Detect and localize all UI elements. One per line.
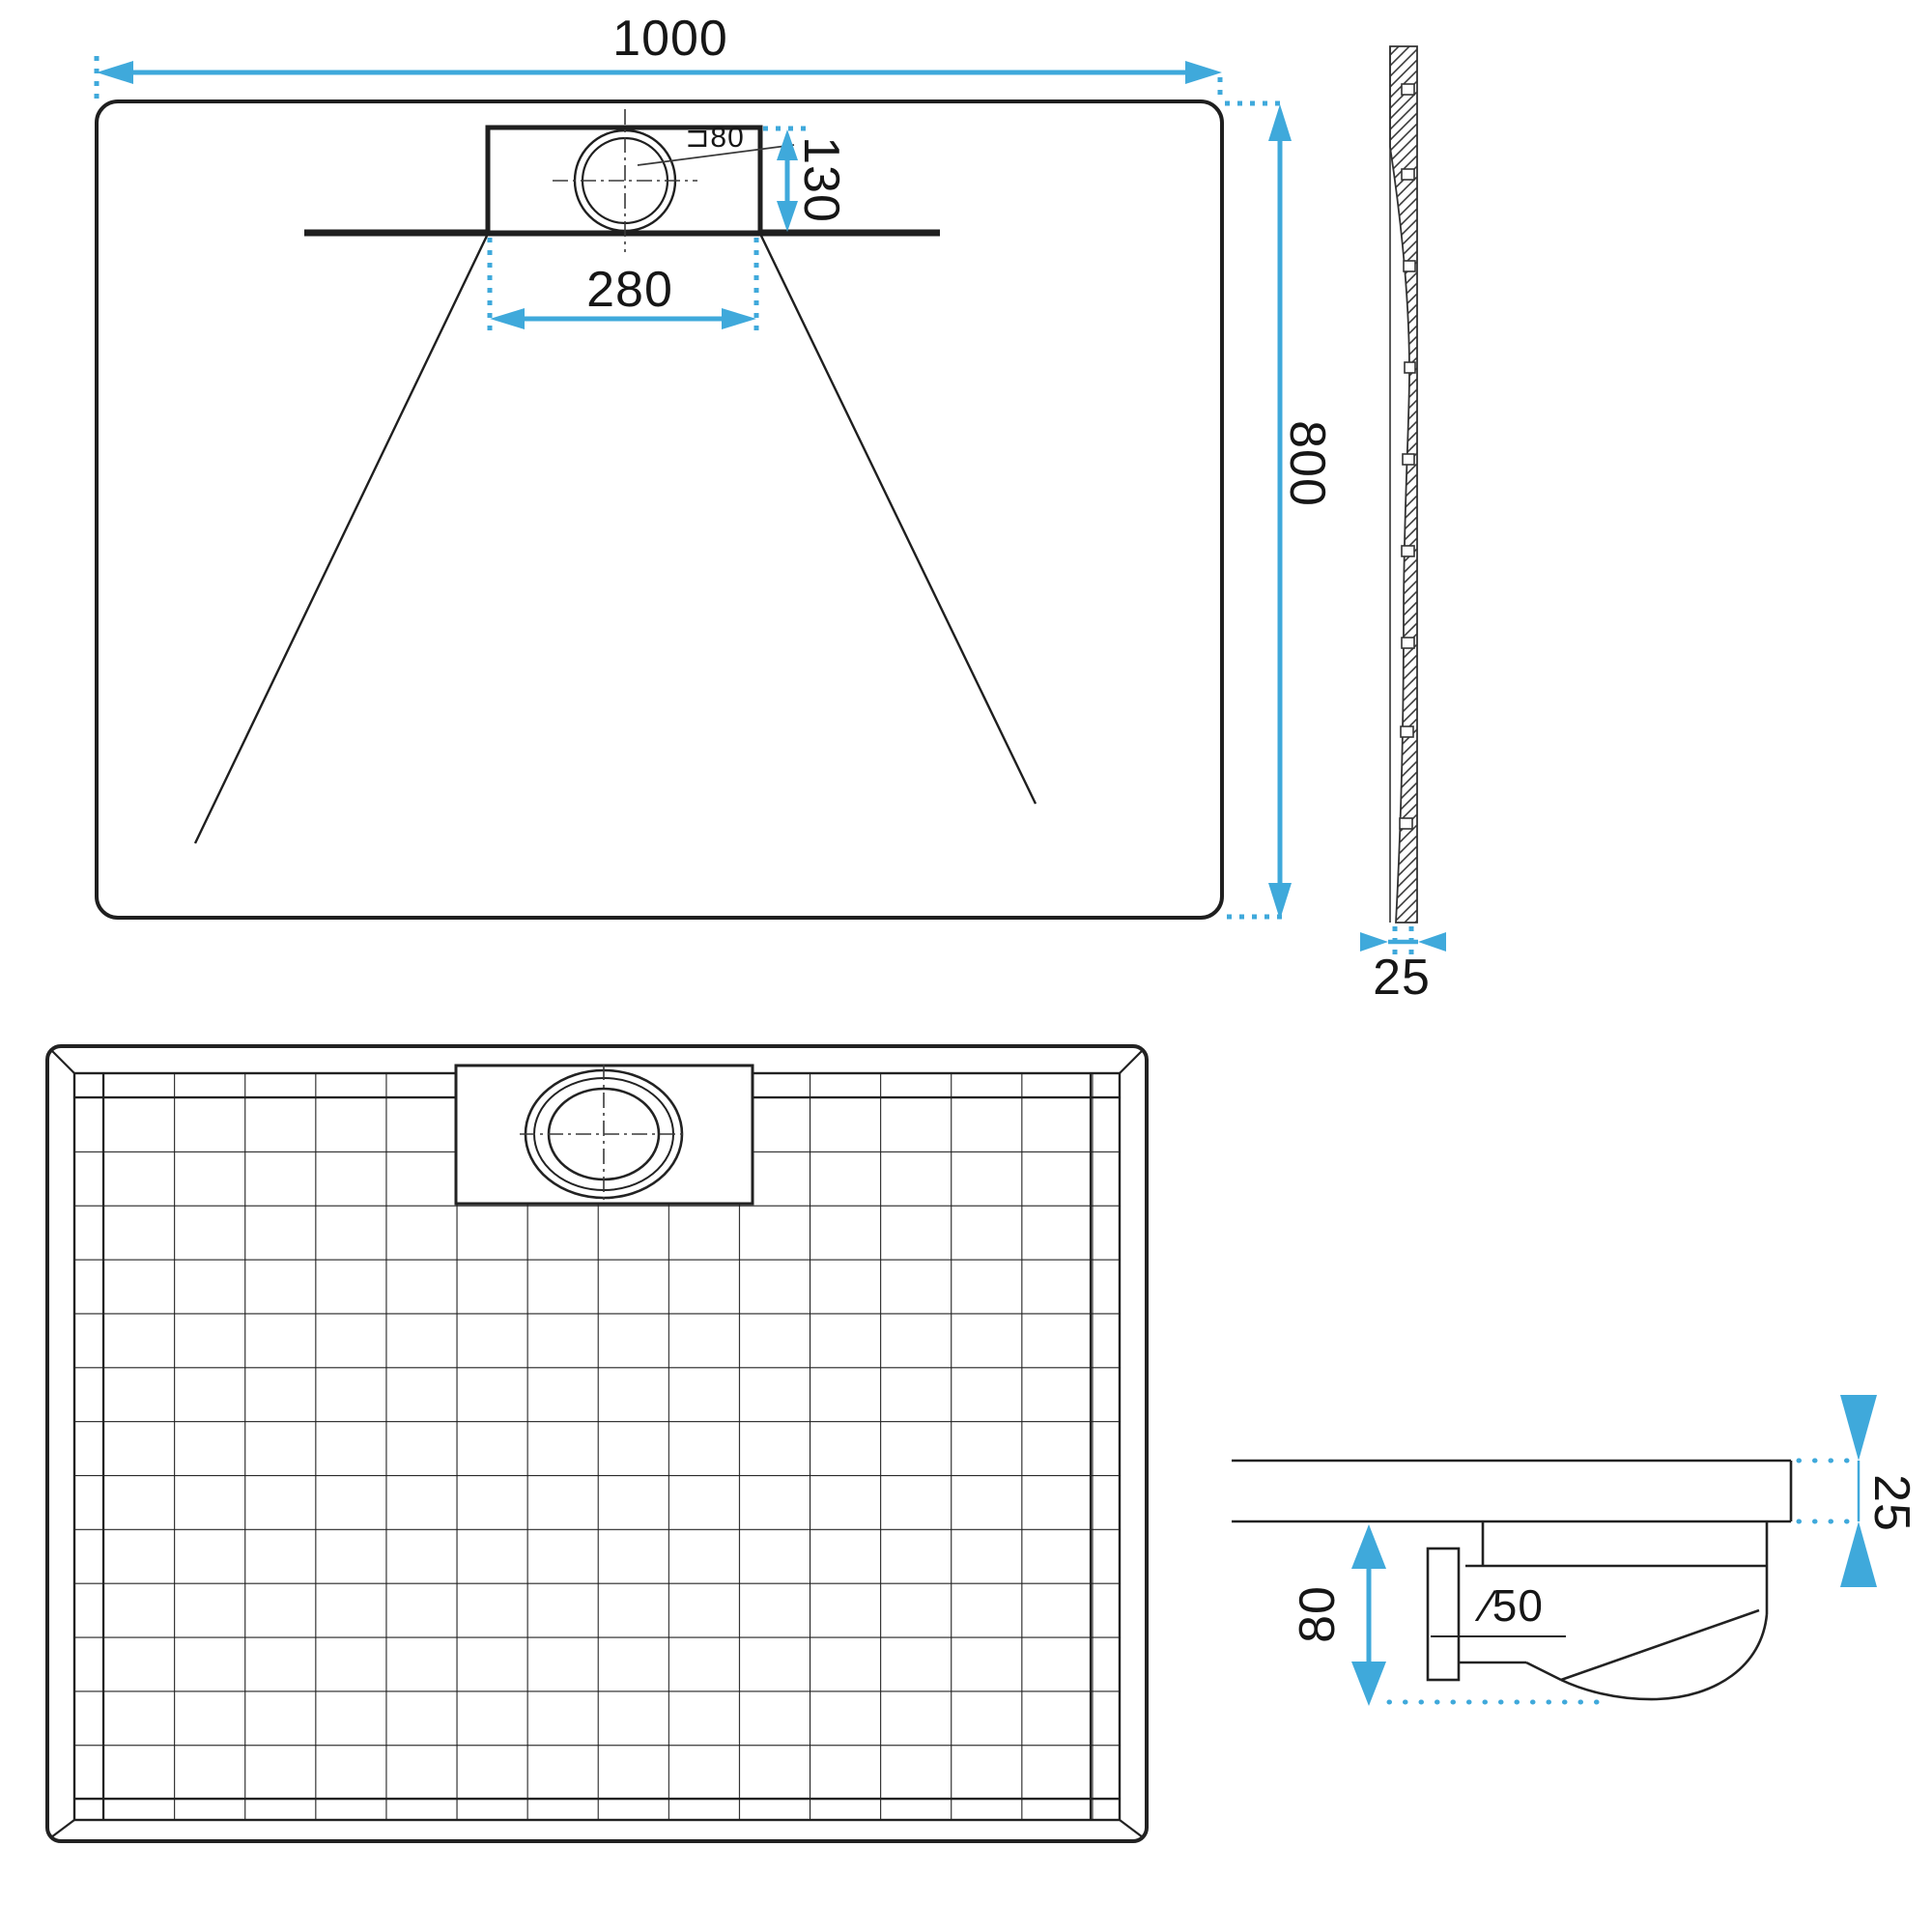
dim-label-section-thickness: 25 — [1866, 1474, 1917, 1532]
dim-label-section-depth: 80 — [1293, 1585, 1343, 1643]
texture-view — [47, 1046, 1147, 1841]
dim-label-drain-diameter: ⊐80 — [685, 124, 745, 153]
dim-800 — [1225, 103, 1292, 920]
dim-label-drain-width: 280 — [586, 265, 673, 315]
section-pipe-diagonal — [1561, 1610, 1759, 1680]
drawing-canvas: 1000 800 130 280 ⊐80 25 80 ∕50 25 — [0, 0, 1932, 1932]
plan-view — [97, 101, 1222, 918]
dim-label-plan-width: 1000 — [612, 14, 728, 64]
linework — [0, 0, 1932, 1932]
section-clamp — [1428, 1548, 1459, 1680]
slope-line-right — [760, 234, 1036, 804]
dim-label-side-thickness: 25 — [1373, 952, 1431, 1003]
dim-label-drain-offset: 130 — [796, 136, 846, 223]
dim-label-pipe-diameter: ∕50 — [1484, 1583, 1544, 1628]
slope-line-left — [195, 234, 488, 843]
section-flange-diagonal — [1526, 1662, 1561, 1680]
section-trap-bowl — [1561, 1614, 1767, 1699]
dim-label-plan-height: 800 — [1282, 420, 1332, 507]
side-profile-view — [1390, 46, 1417, 923]
